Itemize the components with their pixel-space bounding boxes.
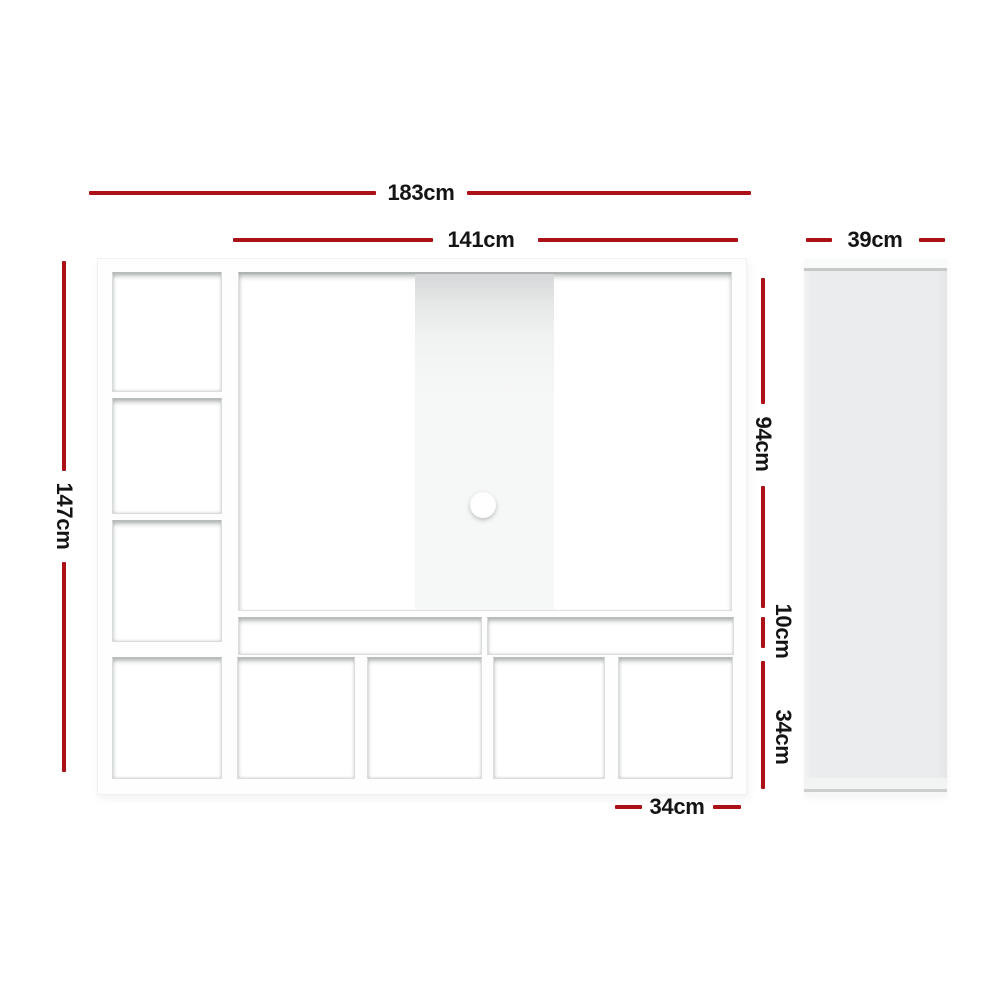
media-shelf-right	[487, 617, 734, 655]
dimension-label-shelf-height: 10cm	[772, 603, 794, 658]
dimension-line-tv-width-right	[538, 238, 738, 242]
dimension-line-shelf-height	[761, 617, 765, 648]
media-shelf-left	[238, 617, 482, 655]
dimension-line-bottom-row-height	[761, 661, 765, 789]
dimension-line-total-width-right	[467, 191, 751, 195]
side-panel-bottom-edge	[804, 792, 947, 796]
cubby-bottom-2	[237, 657, 355, 779]
dimension-line-depth-right	[919, 238, 945, 242]
cubby-bottom-3	[367, 657, 482, 779]
dimension-label-total-height: 147cm	[53, 482, 75, 549]
side-panel-bottom-strip	[804, 778, 947, 789]
dimension-line-tv-width-left	[233, 238, 433, 242]
cubby-bottom-4	[493, 657, 605, 779]
side-panel-top-edge	[804, 259, 947, 268]
dimension-line-total-height-bottom	[62, 562, 66, 772]
dimension-line-total-height-top	[62, 261, 66, 471]
dimension-line-depth-left	[806, 238, 832, 242]
dimension-line-cubby-width-left	[615, 805, 642, 809]
cable-hole	[470, 492, 496, 518]
tv-back-panel	[415, 274, 554, 610]
tv-opening	[238, 272, 732, 611]
dimension-line-tv-height-bottom	[761, 486, 765, 608]
wall-unit-front-view	[97, 258, 747, 795]
dimension-line-total-width-left	[89, 191, 376, 195]
dimension-label-cubby-width: 34cm	[649, 796, 704, 818]
cubby-bottom-1	[112, 657, 222, 779]
dimension-label-total-width: 183cm	[387, 182, 454, 204]
side-panel-view	[804, 259, 947, 796]
dimension-label-bottom-row-height: 34cm	[772, 709, 794, 764]
cubby-left-1	[112, 272, 222, 392]
dimension-line-tv-height-top	[761, 278, 765, 404]
dimension-label-tv-height: 94cm	[752, 416, 774, 471]
dimension-line-cubby-width-right	[713, 805, 741, 809]
dimension-label-tv-width: 141cm	[447, 229, 514, 251]
dimension-diagram: 183cm 141cm 39cm 147cm 94cm 10cm 34cm 70…	[0, 0, 1000, 1000]
cubby-left-2	[112, 398, 222, 514]
cubby-bottom-5	[618, 657, 733, 779]
side-panel-body	[804, 271, 947, 778]
cubby-left-3	[112, 520, 222, 642]
dimension-label-depth: 39cm	[847, 229, 902, 251]
